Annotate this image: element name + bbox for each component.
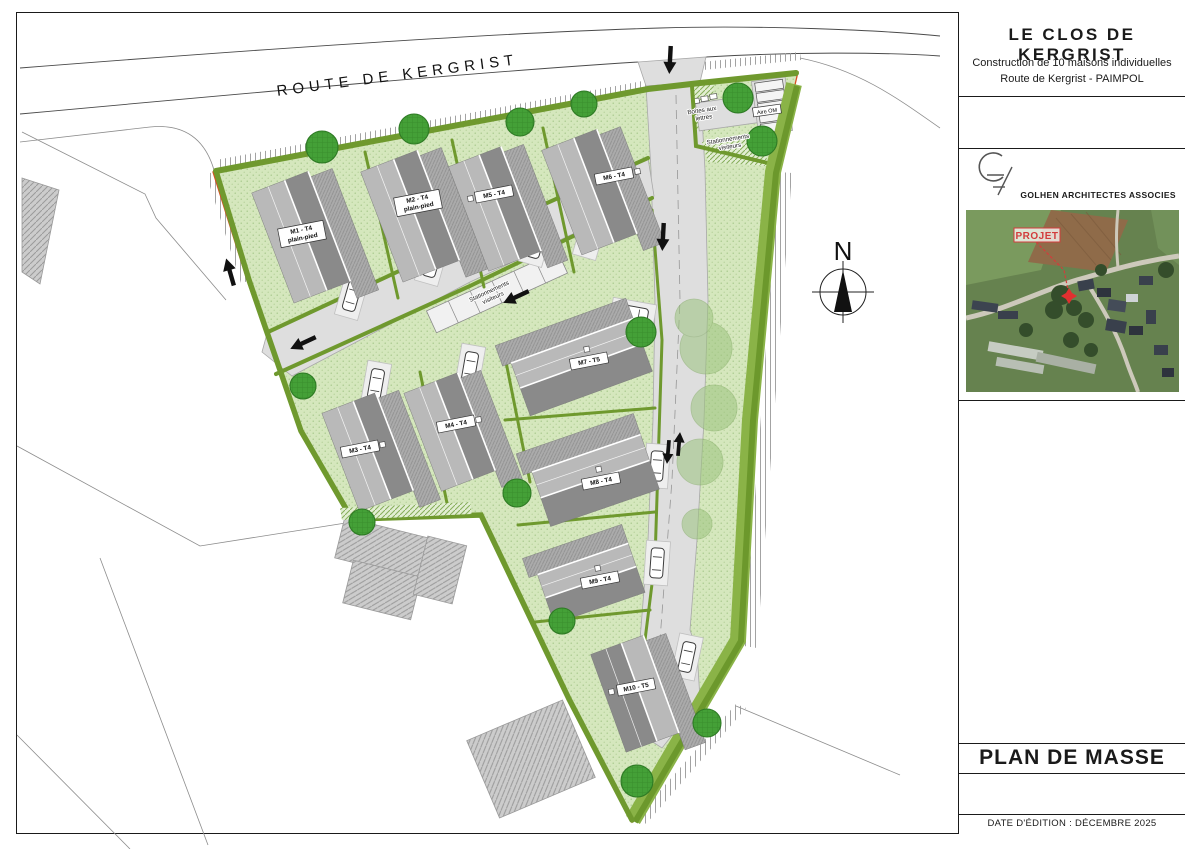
- tree-icon: [571, 91, 597, 117]
- title-block: LE CLOS DE KERGRIST Construction de 10 m…: [958, 12, 1185, 834]
- tree-icon: [503, 479, 531, 507]
- tree-icon: [290, 373, 316, 399]
- architect-name: GOLHEN ARCHITECTES ASSOCIES: [1020, 190, 1176, 200]
- tree-icon: [621, 765, 653, 797]
- divider: [959, 773, 1185, 774]
- drawing-title: PLAN DE MASSE: [959, 743, 1185, 773]
- tree-icon: [747, 126, 777, 156]
- tree-icon: [693, 709, 721, 737]
- tree-canopy-icon: [675, 299, 713, 337]
- tree-icon: [399, 114, 429, 144]
- project-subtitle: Construction de 10 maisons individuelles…: [959, 55, 1185, 87]
- tree-icon: [306, 131, 338, 163]
- tree-icon: [549, 608, 575, 634]
- divider: [959, 400, 1185, 401]
- architect-logo: [971, 150, 1023, 202]
- neighbour-building: [22, 178, 59, 284]
- divider: [959, 148, 1185, 149]
- subtitle-line: Construction de 10 maisons individuelles: [959, 55, 1185, 71]
- tree-icon: [626, 317, 656, 347]
- site-plan-drawing: Stationnements visiteurs M1 - T4plain-pi…: [0, 0, 958, 849]
- tree-icon: [506, 108, 534, 136]
- aerial-photo: PROJET: [966, 210, 1179, 392]
- car-icon: [649, 548, 664, 579]
- subtitle-line: Route de Kergrist - PAIMPOL: [959, 71, 1185, 87]
- north-arrow-icon: N: [812, 236, 874, 323]
- divider: [959, 96, 1185, 97]
- tree-icon: [723, 83, 753, 113]
- tree-canopy-icon: [691, 385, 737, 431]
- project-photo-label: PROJET: [1015, 231, 1058, 242]
- tree-icon: [349, 509, 375, 535]
- edition-date: DATE D'ÉDITION : DÉCEMBRE 2025: [959, 814, 1185, 834]
- tree-canopy-icon: [682, 509, 712, 539]
- road-name-label: ROUTE DE KERGRIST: [276, 51, 519, 100]
- tree-canopy-icon: [677, 439, 723, 485]
